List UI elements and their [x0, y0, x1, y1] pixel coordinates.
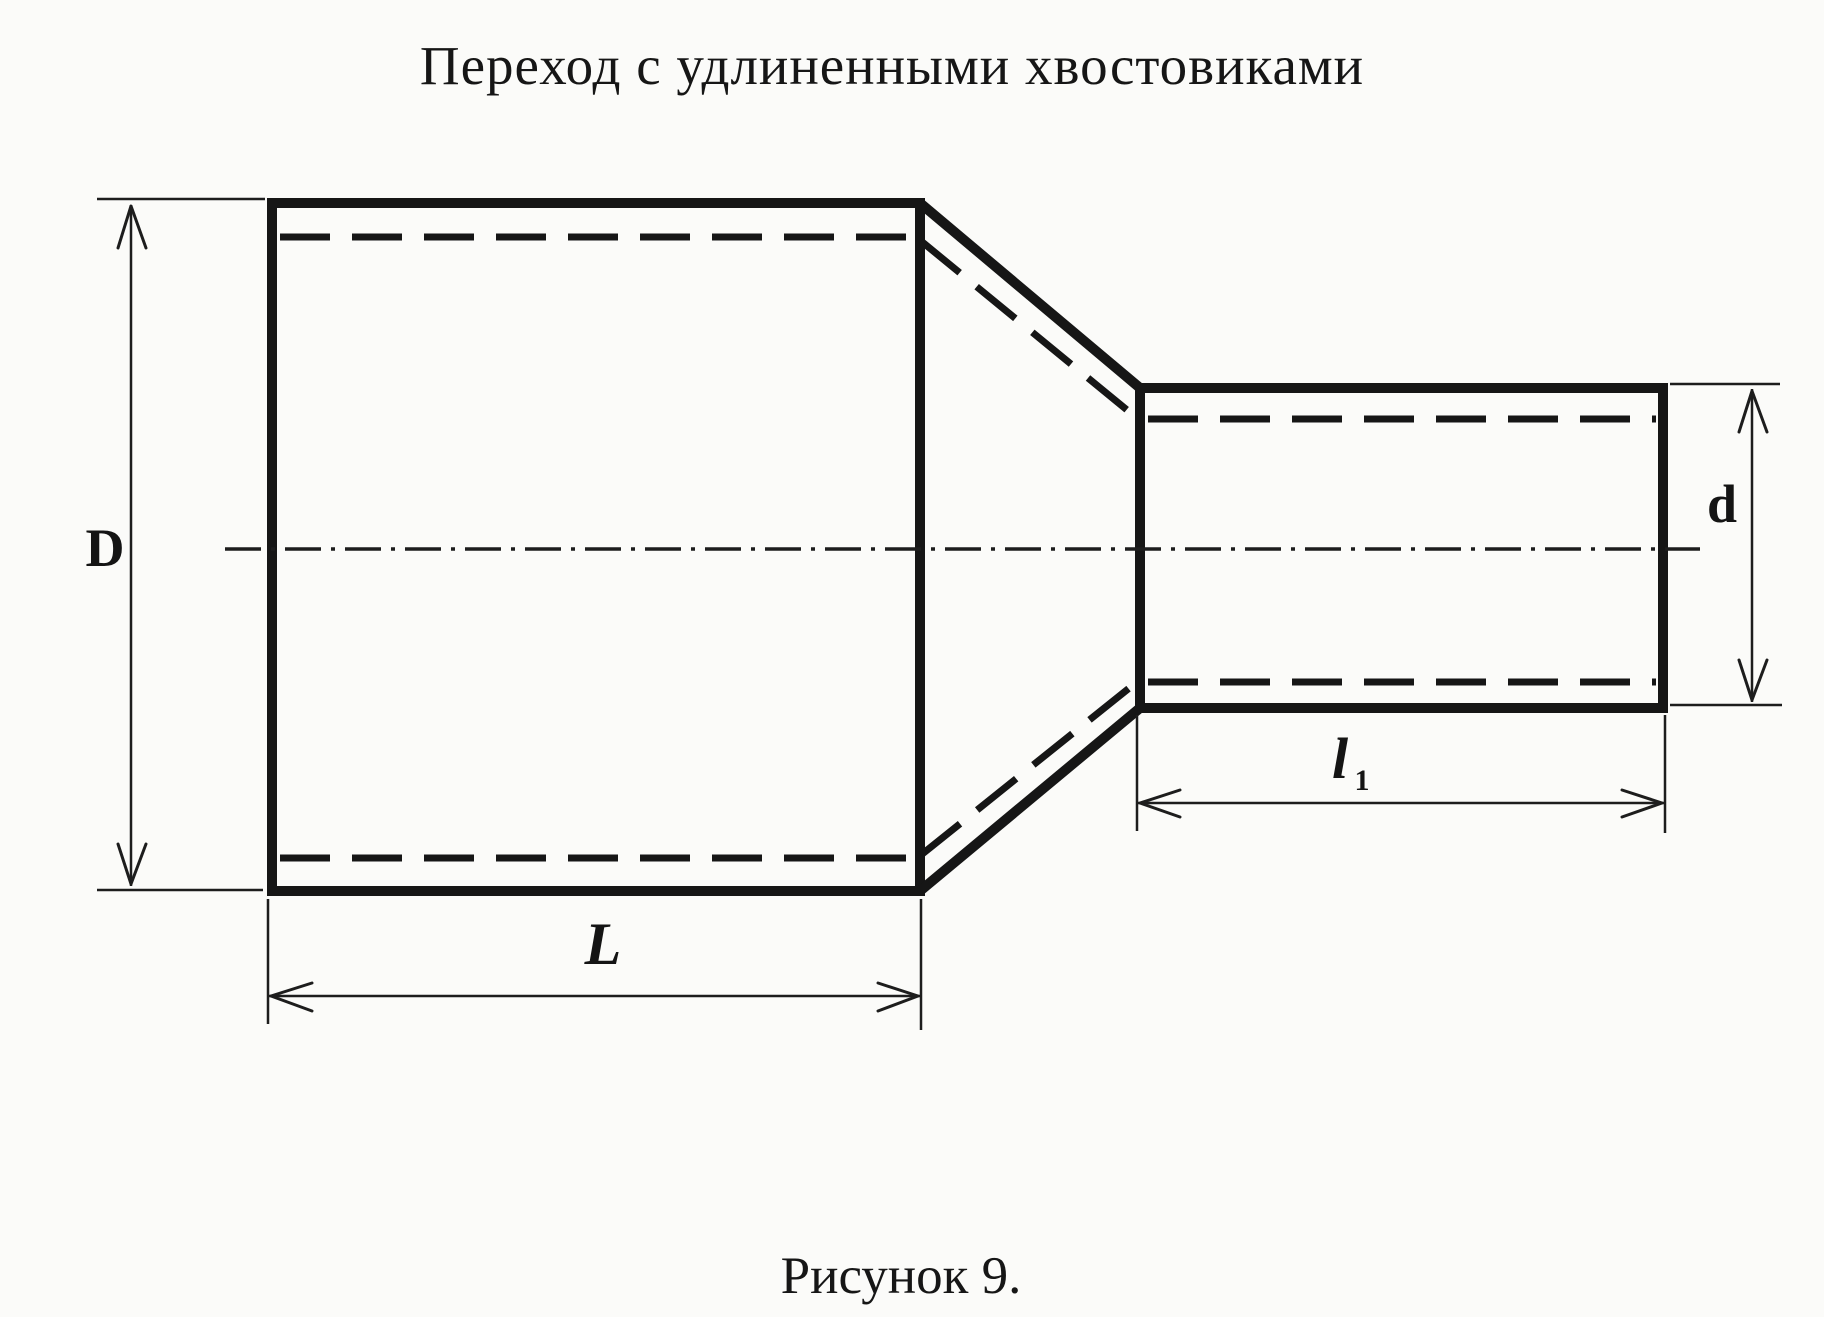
dim-D-label: D: [86, 518, 125, 578]
dim-L-label: L: [584, 911, 622, 977]
large-pipe-outline: [272, 203, 920, 891]
cone-inner-wall-bottom: [921, 681, 1138, 855]
dim-d-label: d: [1707, 474, 1737, 534]
dim-l1-label-subscript: 1: [1355, 764, 1370, 797]
dim-l1-label: l: [1332, 726, 1349, 791]
scanned-drawing-page: Переход с удлиненными хвостовиками D L: [0, 0, 1824, 1317]
reducer-technical-drawing: D L l 1 d: [0, 0, 1824, 1317]
figure-caption: Рисунок 9.: [781, 1246, 1022, 1306]
cone-bottom-edge: [920, 708, 1140, 891]
cone-top-edge: [920, 203, 1140, 388]
cone-inner-wall-top: [921, 241, 1138, 419]
